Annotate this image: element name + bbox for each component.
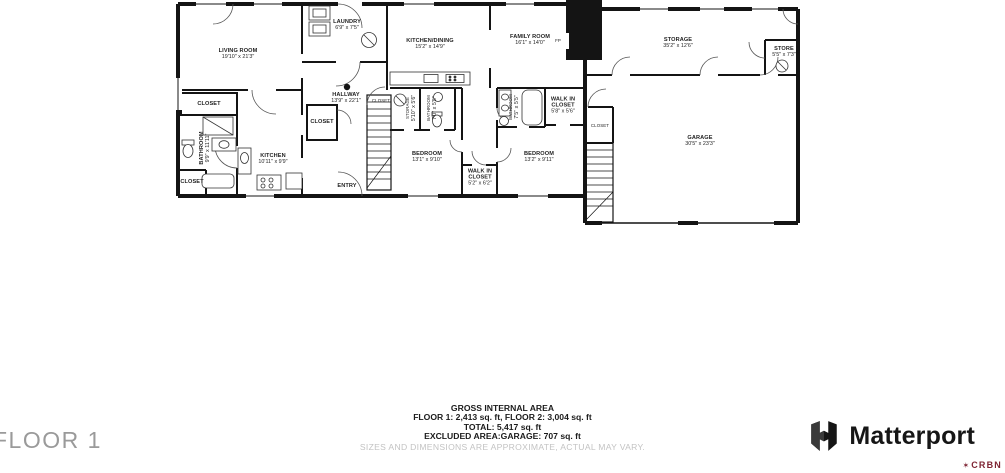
room-label-closet-living: CLOSET bbox=[197, 101, 220, 107]
floor-number-label: FLOOR 1 bbox=[0, 427, 102, 454]
room-name: WALK IN CLOSET bbox=[464, 169, 496, 181]
room-label-bedroom-2: BEDROOM13'2" x 9'11" bbox=[524, 151, 554, 163]
fireplace-icon bbox=[563, 33, 569, 49]
room-label-bedroom-1: BEDROOM13'1" x 9'10" bbox=[412, 151, 442, 163]
matterport-wordmark: Matterport bbox=[849, 422, 975, 451]
interior-walls bbox=[178, 4, 798, 196]
room-label-fireplace: FP bbox=[555, 38, 561, 44]
room-dims: 13'1" x 9'10" bbox=[412, 157, 442, 163]
room-label-bathroom-left: BATHROOM9'9" x 11'11" bbox=[199, 131, 211, 164]
room-label-store: STORE5'5" x 7'3" bbox=[768, 46, 800, 58]
chimney-mass bbox=[566, 0, 602, 60]
room-dims: 9'9" x 11'11" bbox=[205, 131, 211, 164]
kitchen-sink-icon bbox=[238, 148, 251, 174]
fridge-icon bbox=[286, 173, 302, 189]
room-dims: 5'2" x 6'2" bbox=[464, 181, 496, 187]
room-label-bathroom-2: BATHROOM7'5" x 5'5" bbox=[508, 94, 520, 120]
room-label-entry: ENTRY bbox=[337, 183, 356, 189]
room-dims: 16'1" x 14'0" bbox=[510, 40, 550, 46]
room-label-closet-hall: CLOSET bbox=[310, 119, 333, 125]
room-label-laundry: LAUNDRY6'9" x 7'5" bbox=[333, 19, 361, 31]
room-dims: 30'5" x 23'3" bbox=[685, 141, 715, 147]
room-label-storage-small: STORAGE5'10" x 5'6" bbox=[405, 95, 417, 122]
room-name: FP bbox=[555, 38, 561, 44]
matterport-icon bbox=[807, 419, 841, 453]
room-label-closet-bottom-left: CLOSET bbox=[180, 179, 203, 185]
store-heater-icon bbox=[776, 60, 788, 72]
stairs-main bbox=[367, 95, 391, 190]
room-name: CLOSET bbox=[197, 101, 220, 107]
floor-plan-page: LIVING ROOM19'10" x 21'3" CLOSET BATHROO… bbox=[0, 0, 1005, 473]
bath-left-vanity-icon bbox=[212, 138, 236, 151]
crbn-icon: ✶ bbox=[962, 461, 969, 470]
counter-kitchen-dining bbox=[390, 72, 470, 85]
room-label-living-room: LIVING ROOM19'10" x 21'3" bbox=[219, 48, 258, 60]
room-label-walkin-closet-right: WALK IN CLOSET5'8" x 5'6" bbox=[547, 97, 579, 116]
room-name: CLOSET bbox=[372, 98, 390, 104]
room-dims: 5'10" x 5'6" bbox=[411, 95, 417, 122]
room-dims: 15'2" x 14'9" bbox=[406, 44, 453, 50]
crbn-watermark: ✶ CRBN bbox=[962, 460, 1002, 470]
windows bbox=[174, 0, 778, 227]
room-dims: 10'11" x 9'9" bbox=[258, 159, 287, 165]
room-label-kitchen-dining: KITCHEN/DINING15'2" x 14'9" bbox=[406, 38, 453, 50]
room-name: CLOSET bbox=[591, 123, 609, 129]
room-dims: 13'9" x 22'1" bbox=[331, 98, 361, 104]
room-dims: 5'5" x 7'3" bbox=[768, 52, 800, 58]
room-label-garage: GARAGE30'5" x 23'3" bbox=[685, 135, 715, 147]
room-label-family-room: FAMILY ROOM16'1" x 14'0" bbox=[510, 34, 550, 46]
matterport-logo: Matterport bbox=[807, 419, 975, 453]
room-label-closet-garage: CLOSET bbox=[591, 123, 609, 129]
room-dims: 19'10" x 21'3" bbox=[219, 54, 258, 60]
room-name: CLOSET bbox=[180, 179, 203, 185]
kitchen-stove-icon bbox=[257, 175, 281, 190]
bath2-icons bbox=[499, 90, 542, 126]
room-label-storage-big: STORAGE35'2" x 12'6" bbox=[663, 37, 693, 49]
room-name: CLOSET bbox=[310, 119, 333, 125]
washer-dryer-icon bbox=[309, 6, 330, 36]
room-dims: 5'8" x 5'6" bbox=[547, 109, 579, 115]
room-name: ENTRY bbox=[337, 183, 356, 189]
room-label-kitchen: KITCHEN10'11" x 9'9" bbox=[258, 153, 287, 165]
water-heater-icon bbox=[362, 33, 377, 48]
room-dims: 35'2" x 12'6" bbox=[663, 43, 693, 49]
room-dims: 7'0" x 5'5" bbox=[432, 95, 438, 121]
room-dims: 13'2" x 9'11" bbox=[524, 157, 554, 163]
room-label-hallway: HALLWAY13'9" x 22'1" bbox=[331, 92, 361, 104]
hall-column bbox=[344, 84, 350, 90]
room-dims: 7'5" x 5'5" bbox=[514, 94, 520, 120]
room-label-closet-stairs: CLOSET bbox=[372, 98, 390, 104]
crbn-text: CRBN bbox=[971, 460, 1002, 470]
bath-left-toilet-icon bbox=[182, 140, 194, 158]
stairs-garage bbox=[586, 143, 613, 222]
room-name: WALK IN CLOSET bbox=[547, 97, 579, 109]
floor-plan-drawing bbox=[0, 0, 1005, 245]
room-label-walkin-closet-center: WALK IN CLOSET5'2" x 6'2" bbox=[464, 169, 496, 188]
room-dims: 6'9" x 7'5" bbox=[333, 25, 361, 31]
room-label-bathroom-mid: BATHROOM7'0" x 5'5" bbox=[426, 95, 438, 121]
bath-left-tub-icon bbox=[202, 174, 234, 188]
